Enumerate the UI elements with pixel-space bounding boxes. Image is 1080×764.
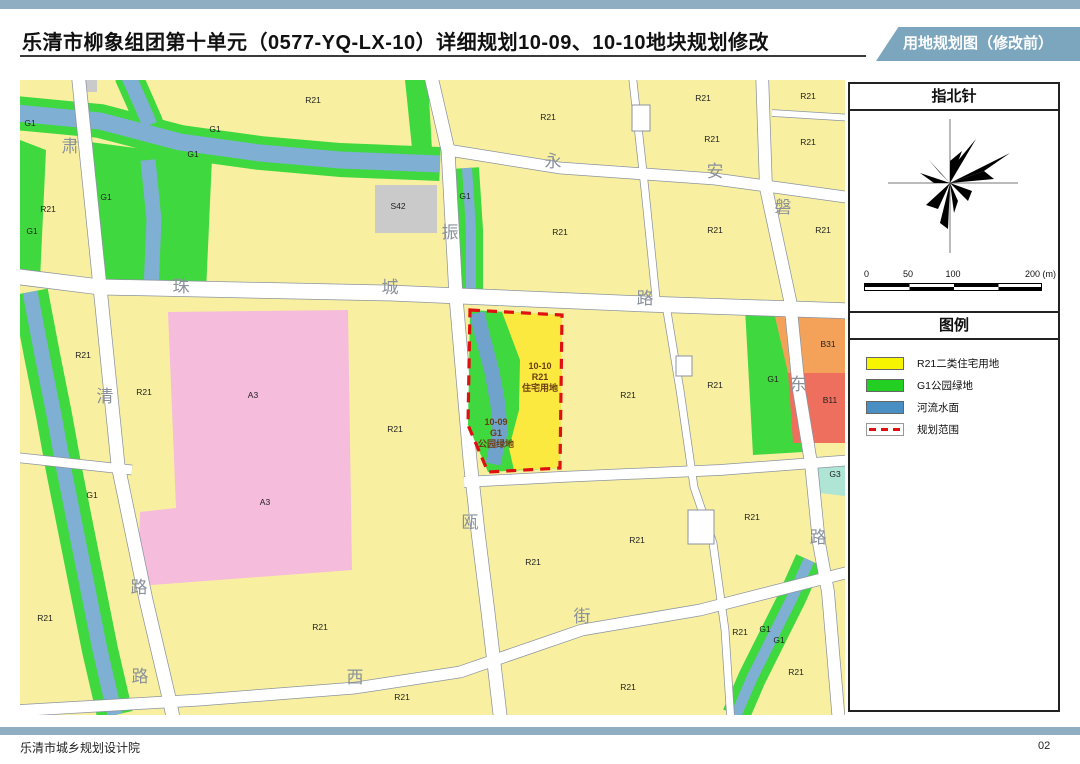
compass-rose-icon — [850, 111, 1054, 269]
block-code-label: G1 — [759, 624, 771, 634]
block-code-label: G1 — [459, 191, 471, 201]
block-code-label: R21 — [387, 424, 403, 434]
block-code-label: R21 — [540, 112, 556, 122]
legend-item: 规划范围 — [866, 422, 1058, 437]
block-code-label: G1 — [767, 374, 779, 384]
block-code-label: R21 — [620, 682, 636, 692]
road-name-label: 东 — [790, 375, 807, 394]
plan-sheet: { "header": { "title": "乐清市柳象组团第十单元（0577… — [0, 0, 1080, 764]
block-code-label: R21 — [800, 91, 816, 101]
block-code-label: R21 — [312, 622, 328, 632]
block-code-label: R21 — [75, 350, 91, 360]
planning-map-svg: 肃清路珠城路振永安磐东路瓯街西路R21R21R21R21R21R21R21R21… — [20, 80, 845, 715]
road-name-label: 安 — [707, 162, 724, 181]
map-key-panel: 指北针 050100200 (m) — [848, 82, 1060, 712]
legend-item: G1公园绿地 — [866, 378, 1058, 393]
block-s42-gray — [375, 185, 437, 233]
road-name-label: 磐 — [775, 198, 792, 217]
block-code-label: R21 — [695, 93, 711, 103]
road-name-label: 西 — [347, 668, 364, 687]
block-code-label: R21 — [704, 134, 720, 144]
road-name-label: 路 — [131, 578, 148, 597]
block-code-label: G1 — [24, 118, 36, 128]
legend-item: 河流水面 — [866, 400, 1058, 415]
plot-annotation-label: G1 — [490, 428, 502, 438]
road-name-label: 路 — [132, 667, 149, 686]
block-code-label: G1 — [100, 192, 112, 202]
compass-title: 指北针 — [850, 84, 1058, 111]
plot-annotation-label: R21 — [532, 372, 549, 382]
plot-annotation-label: 公园绿地 — [478, 438, 514, 449]
footer-page-number: 02 — [1038, 740, 1050, 752]
scale-tick-label: 0 — [864, 269, 869, 279]
scale-tick-label: 200 (m) — [1025, 269, 1056, 279]
planning-map: 肃清路珠城路振永安磐东路瓯街西路R21R21R21R21R21R21R21R21… — [20, 80, 845, 715]
road-name-label: 路 — [810, 528, 827, 547]
compass-box — [850, 111, 1058, 269]
plot-annotation-label: 10-09 — [484, 417, 507, 427]
block-code-label: R21 — [40, 204, 56, 214]
road-name-label: 珠 — [173, 277, 190, 296]
block-code-label: G1 — [187, 149, 199, 159]
block-code-label: G1 — [26, 226, 38, 236]
road-name-label: 街 — [574, 607, 591, 626]
road-name-label: 清 — [97, 387, 114, 406]
top-accent-bar — [0, 0, 1080, 9]
legend-item-label: G1公园绿地 — [917, 378, 973, 393]
road-name-label: 永 — [545, 152, 562, 171]
footer-organization: 乐清市城乡规划设计院 — [20, 739, 140, 756]
block-code-label: G1 — [773, 635, 785, 645]
block-code-label: R21 — [620, 390, 636, 400]
block-code-label: G3 — [829, 469, 841, 479]
block-code-label: B11 — [823, 395, 838, 405]
scale-bar-graphic — [864, 283, 1042, 291]
scale-bar: 050100200 (m) — [850, 269, 1058, 301]
legend-color-swatch — [866, 401, 904, 414]
block-code-label: R21 — [629, 535, 645, 545]
road-name-label: 城 — [382, 278, 399, 297]
river-south-branch-water — [148, 160, 154, 290]
bottom-accent-bar — [0, 727, 1080, 735]
block-code-label: R21 — [788, 667, 804, 677]
legend-list: R21二类住宅用地G1公园绿地河流水面规划范围 — [850, 340, 1058, 437]
block-code-label: G1 — [209, 124, 221, 134]
legend-item-label: 河流水面 — [917, 400, 959, 415]
legend-item-label: R21二类住宅用地 — [917, 356, 999, 371]
sheet-type-tag: 用地规划图（修改前） — [876, 27, 1080, 61]
block-code-label: R21 — [800, 137, 816, 147]
block-code-label: S42 — [390, 201, 405, 211]
block-code-label: R21 — [37, 613, 53, 623]
road-name-label: 振 — [442, 223, 459, 242]
compass-petals — [920, 139, 1010, 229]
block-code-label: R21 — [305, 95, 321, 105]
block-code-label: R21 — [707, 225, 723, 235]
block-code-label: R21 — [525, 557, 541, 567]
block-code-label: R21 — [815, 225, 831, 235]
plot-annotation-label: 住宅用地 — [522, 382, 558, 393]
title-underline — [20, 55, 866, 57]
block-code-label: R21 — [552, 227, 568, 237]
block-code-label: B31 — [820, 339, 835, 349]
block-code-label: R21 — [707, 380, 723, 390]
road-name-label: 瓯 — [462, 513, 479, 532]
block-code-label: R21 — [732, 627, 748, 637]
block-code-label: R21 — [136, 387, 152, 397]
legend-item: R21二类住宅用地 — [866, 356, 1058, 371]
sheet-title: 乐清市柳象组团第十单元（0577-YQ-LX-10）详细规划10-09、10-1… — [22, 26, 769, 55]
legend-item-label: 规划范围 — [917, 422, 959, 437]
road-name-label: 路 — [637, 289, 654, 308]
block-code-label: A3 — [248, 390, 259, 400]
river-midtown-water — [467, 168, 471, 298]
legend-color-swatch — [866, 379, 904, 392]
plot-annotation-label: 10-10 — [528, 361, 551, 371]
legend-color-swatch — [866, 357, 904, 370]
legend-dashed-swatch — [866, 423, 904, 436]
legend-title: 图例 — [850, 311, 1058, 340]
road-name-label: 肃 — [62, 137, 79, 156]
block-code-label: G1 — [86, 490, 98, 500]
block-code-label: R21 — [394, 692, 410, 702]
block-code-label: A3 — [260, 497, 271, 507]
scale-tick-label: 50 — [903, 269, 913, 279]
scale-tick-label: 100 — [945, 269, 960, 279]
block-code-label: R21 — [744, 512, 760, 522]
